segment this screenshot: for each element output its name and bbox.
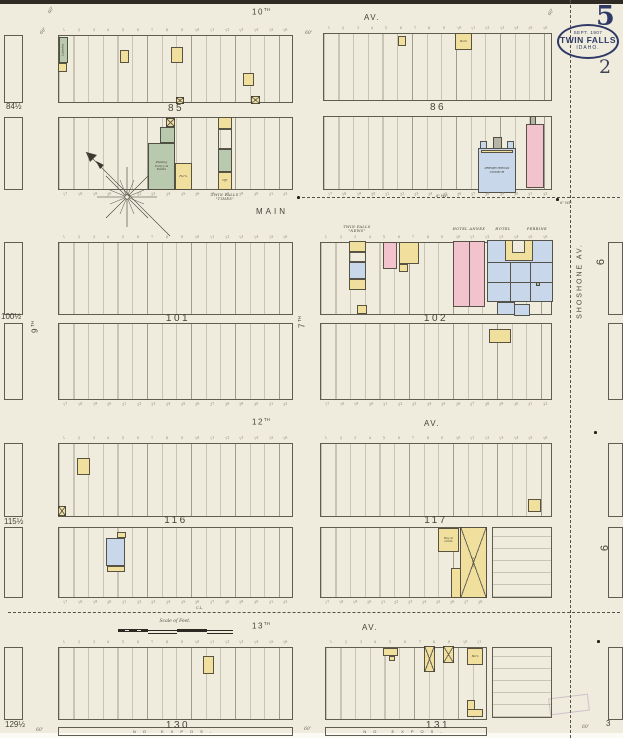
building (497, 302, 515, 315)
lot-number: 24 (165, 401, 171, 406)
water-pipe-dot (297, 196, 300, 199)
lot-number: 2 (77, 28, 80, 33)
lot-number: 24 (165, 599, 171, 604)
lot-number: 28 (477, 599, 483, 604)
building-label: Barn (468, 649, 482, 664)
street-12-num: 12 (252, 418, 264, 427)
lot-number: 27 (470, 401, 476, 406)
lot-number: 11 (209, 27, 215, 32)
lot-number: 31 (268, 401, 274, 406)
building (58, 506, 66, 516)
lot-number: 25 (441, 401, 447, 406)
block-strip (58, 443, 293, 517)
lot-number: 9 (180, 436, 183, 441)
building: Off. (218, 172, 232, 190)
map-annotation: TWIN FALLS "NEWS" (343, 225, 370, 233)
lot-number: 3 (92, 436, 95, 441)
lot-number: 5 (121, 640, 124, 645)
lot-number: 13 (499, 234, 505, 239)
block-strip (323, 116, 552, 190)
lot-number: 1 (63, 436, 66, 441)
lot-number: 30 (254, 599, 260, 604)
lot-number: 13 (239, 435, 245, 440)
block-number: 85 (168, 103, 184, 114)
lot-number: 8 (426, 436, 429, 441)
lot-number: 10 (462, 639, 468, 644)
lot-number: 3 (356, 26, 359, 31)
lot-number: 1 (330, 640, 333, 645)
lot-number: 11 (470, 435, 476, 440)
street-label-main: MAIN (256, 207, 288, 216)
water-pipe-dot (597, 640, 600, 643)
lot-number: 4 (107, 640, 110, 645)
street-label-12th: 12TH (252, 417, 270, 427)
half-block-number: 84½ (6, 102, 22, 111)
building (443, 646, 454, 663)
lot-number: 23 (408, 599, 414, 604)
lot-number: 4 (107, 436, 110, 441)
building: Livery (460, 527, 487, 598)
lot-number: 16 (283, 234, 289, 239)
scan-edge-top (0, 0, 623, 4)
building (251, 96, 260, 104)
street-label-9th: 9TH (30, 321, 40, 333)
lot-number: 18 (338, 599, 344, 604)
half-block-number: 100½ (1, 312, 21, 321)
shoshone-av-centerline (570, 0, 571, 738)
lot-number: 7 (418, 640, 421, 645)
lot-number: 15 (268, 234, 274, 239)
block-strip (320, 323, 552, 400)
building (218, 129, 232, 149)
lot-number: 30 (254, 191, 260, 196)
building (218, 149, 232, 172)
building (160, 127, 175, 143)
lot-number: 23 (151, 599, 157, 604)
block-number: 86 (430, 102, 446, 113)
lot-number: 3 (92, 28, 95, 33)
lot-number: 19 (356, 191, 362, 196)
block-number: 102 (424, 313, 448, 324)
building (530, 116, 536, 125)
building (526, 124, 544, 188)
lot-number: 31 (528, 401, 534, 406)
lot-number: 16 (283, 27, 289, 32)
lot-number: 26 (195, 401, 201, 406)
lot-number: 27 (471, 191, 477, 196)
lot-number: 7 (413, 26, 416, 31)
building (120, 50, 129, 63)
lot-number: 9 (180, 235, 183, 240)
lot-number: 20 (370, 191, 376, 196)
utility-note: 6" W.P. (560, 201, 572, 205)
lot-number: 9 (180, 28, 183, 33)
lot-number: 2 (77, 436, 80, 441)
lot-number: 1 (63, 28, 66, 33)
lot-number: 1 (324, 436, 327, 441)
lot-number: 3 (359, 640, 362, 645)
lot-number: 10 (195, 639, 201, 644)
building-label: PRESBYTERIAN CHURCH (479, 149, 515, 192)
block-strip (492, 647, 552, 718)
lot-number: 21 (121, 599, 127, 604)
lot-number: 3 (353, 436, 356, 441)
lot-number: 16 (283, 639, 289, 644)
block-strip (4, 527, 23, 598)
lot-number: 22 (397, 401, 403, 406)
lot-number: 7 (151, 436, 154, 441)
building (203, 656, 214, 674)
lot-number: 2 (77, 640, 80, 645)
lot-number: 11 (471, 25, 477, 30)
building (166, 118, 175, 127)
lot-number: 25 (180, 599, 186, 604)
lot-number: 21 (380, 599, 386, 604)
street-9-num: 9 (31, 327, 40, 333)
lot-number: 30 (514, 191, 520, 196)
building (487, 262, 553, 263)
main-street-pipe-line (297, 197, 620, 198)
building (58, 63, 67, 72)
lot-number: 12 (224, 435, 230, 440)
lot-number: 6 (397, 235, 400, 240)
lot-number: 15 (528, 25, 534, 30)
lot-number: 30 (254, 401, 260, 406)
lot-number: 5 (382, 436, 385, 441)
lot-number: 20 (107, 599, 113, 604)
lot-number: 29 (499, 401, 505, 406)
lot-number: 19 (92, 401, 98, 406)
building (243, 73, 254, 86)
city-limits-line (8, 612, 620, 613)
lot-number: 26 (456, 191, 462, 196)
lot-number: 18 (77, 599, 83, 604)
lot-number: 13 (499, 435, 505, 440)
building (349, 262, 366, 279)
lot-number: 15 (268, 639, 274, 644)
street-label-13th: 13TH (252, 621, 270, 631)
dimension-label: 60' (47, 6, 55, 15)
edge-block-number: 6 (599, 545, 611, 551)
lot-number: 13 (239, 27, 245, 32)
dimension-label: 60' (305, 31, 312, 36)
lot-number: 32 (542, 191, 548, 196)
street-label-10th-av: AV. (364, 13, 380, 22)
block-strip (58, 35, 293, 103)
street-13-suffix: TH (264, 621, 270, 626)
lot-number: 11 (209, 234, 215, 239)
building (469, 241, 470, 307)
lot-number: 32 (283, 401, 289, 406)
lot-number: 4 (107, 28, 110, 33)
block-strip (4, 443, 23, 517)
lot-number: 15 (268, 435, 274, 440)
building (107, 566, 125, 572)
lot-number: 24 (422, 599, 428, 604)
block-number: 116 (164, 515, 187, 526)
lot-number: 11 (209, 435, 215, 440)
lot-number: 21 (385, 191, 391, 196)
block-strip (320, 443, 552, 517)
lot-number: 20 (368, 401, 374, 406)
scale-label: Scale of Feet. (159, 619, 190, 624)
lot-number: 4 (374, 640, 377, 645)
building (467, 709, 483, 717)
lot-number: 19 (354, 401, 360, 406)
lot-number: 5 (385, 26, 388, 31)
building (218, 117, 232, 129)
stamp-date: SEPT. 1907 (559, 30, 617, 35)
street-10-suffix: TH (264, 7, 270, 12)
lot-number: 21 (121, 401, 127, 406)
building-label: Planing Carp'y & Paints (149, 144, 174, 189)
building: Barn (455, 33, 472, 50)
lot-number: 10 (455, 435, 461, 440)
lot-number: 1 (63, 640, 66, 645)
lot-number: 9 (447, 640, 450, 645)
lot-number: 8 (426, 235, 429, 240)
building (481, 150, 513, 153)
lot-number: 32 (283, 599, 289, 604)
lot-number: 30 (513, 401, 519, 406)
lot-number: 28 (484, 401, 490, 406)
lot-number: 20 (366, 599, 372, 604)
lot-number: 5 (388, 640, 391, 645)
dimension-label: 60' (39, 27, 47, 36)
lot-number: 16 (542, 435, 548, 440)
street-7-num: 7 (298, 322, 307, 328)
stamp-state: IDAHO. (559, 45, 617, 51)
half-block-number: 129½ (5, 720, 25, 729)
lot-number: 6 (397, 436, 400, 441)
lot-number: 32 (542, 401, 548, 406)
lot-number: 5 (121, 436, 124, 441)
building (349, 241, 366, 252)
lot-number: 16 (542, 25, 548, 30)
lot-number: 4 (370, 26, 373, 31)
street-10-num: 10 (252, 8, 264, 17)
dimension-label: 60' (547, 8, 555, 17)
lot-number: 18 (342, 191, 348, 196)
lot-number: 8 (165, 28, 168, 33)
lot-number: 10 (455, 234, 461, 239)
lot-number: 7 (151, 640, 154, 645)
lot-number: 12 (224, 639, 230, 644)
lot-number: 10 (195, 234, 201, 239)
no-exposure-strip-131: NO EXPOS- (325, 727, 487, 736)
lot-number: 10 (195, 435, 201, 440)
lot-number: 14 (513, 234, 519, 239)
lot-number: 20 (107, 401, 113, 406)
lot-number: 15 (528, 234, 534, 239)
lot-number: 10 (195, 27, 201, 32)
lot-number: 29 (239, 401, 245, 406)
lot-number: 5 (382, 235, 385, 240)
street-12-suffix: TH (264, 417, 270, 422)
half-block-number: 115½ (4, 517, 23, 526)
lot-number: 22 (136, 401, 142, 406)
lot-number: 27 (209, 401, 215, 406)
lot-number: 14 (254, 639, 260, 644)
block-strip (4, 242, 23, 315)
building-label: Off. (219, 173, 231, 189)
building: Barn (467, 648, 483, 665)
building (171, 47, 183, 63)
lot-number: 8 (433, 640, 436, 645)
building: Hay & Grain (438, 528, 459, 552)
lot-number: 22 (394, 599, 400, 604)
lot-number: 15 (268, 27, 274, 32)
block-number: 131 (426, 720, 450, 731)
building (451, 568, 461, 598)
lot-number: 11 (477, 639, 483, 644)
building (536, 282, 540, 286)
building (349, 279, 366, 290)
lot-number: 17 (327, 191, 333, 196)
lot-number: 24 (426, 401, 432, 406)
block-strip (608, 242, 623, 315)
lot-number: 25 (180, 191, 186, 196)
lot-number: 3 (353, 235, 356, 240)
lot-number: 23 (151, 401, 157, 406)
street-label-7th: 7TH (297, 316, 307, 328)
block-strip (4, 35, 23, 103)
building-label: Barn (456, 34, 471, 49)
lot-number: 13 (499, 25, 505, 30)
lot-number: 23 (413, 191, 419, 196)
lot-number: 17 (63, 599, 69, 604)
lot-number: 29 (499, 191, 505, 196)
lot-number: 14 (254, 27, 260, 32)
lot-number: 13 (239, 639, 245, 644)
edge-block-number: 6 (595, 259, 607, 265)
building (487, 282, 553, 283)
lot-number: 8 (165, 436, 168, 441)
lot-number: 4 (368, 436, 371, 441)
map-annotation: PERRINE (527, 227, 547, 231)
block-strip (58, 323, 293, 400)
lot-number: 12 (484, 435, 490, 440)
lot-number: 14 (254, 234, 260, 239)
lot-number: 2 (342, 26, 345, 31)
title-stamp: SEPT. 1907 TWIN FALLS IDAHO. (557, 24, 619, 59)
block-strip (58, 647, 293, 720)
building: Laundry (59, 37, 68, 63)
lot-number: 7 (411, 436, 414, 441)
lot-number: 14 (254, 435, 260, 440)
lot-number: 9 (442, 26, 445, 31)
building (489, 329, 511, 343)
map-annotation: HOTEL (495, 227, 510, 231)
lot-number: 2 (339, 436, 342, 441)
lot-number: 1 (327, 26, 330, 31)
lot-number: 5 (121, 28, 124, 33)
building: Furn. (175, 163, 192, 190)
block-strip (4, 647, 23, 720)
lot-number: 17 (63, 401, 69, 406)
building (106, 538, 125, 566)
building (399, 264, 408, 272)
block-number: 101 (166, 313, 190, 324)
street-label-shoshone-av: SHOSHONE AV. (577, 224, 587, 339)
faint-ink-stamp (548, 694, 590, 716)
lot-number: 27 (209, 599, 215, 604)
lot-number: 26 (450, 599, 456, 604)
lot-number: 32 (283, 191, 289, 196)
lot-number: 18 (77, 401, 83, 406)
block-strip (325, 647, 487, 720)
building: Planing Carp'y & Paints (148, 143, 175, 190)
lot-number: 16 (542, 234, 548, 239)
building: PRESBYTERIAN CHURCH (478, 148, 516, 193)
lot-number: 24 (428, 191, 434, 196)
lot-number: 12 (484, 234, 490, 239)
building-label: Furn. (176, 164, 191, 189)
block-number: 117 (424, 515, 447, 526)
block-strip (323, 33, 552, 101)
building (77, 458, 90, 475)
building (424, 646, 435, 672)
lot-number: 27 (463, 599, 469, 604)
lot-number: 17 (324, 599, 330, 604)
building (389, 656, 395, 661)
street-13-num: 13 (252, 622, 264, 631)
lot-number: 7 (411, 235, 414, 240)
lot-number: 25 (180, 401, 186, 406)
lot-number: 28 (224, 599, 230, 604)
lot-number: 28 (224, 401, 230, 406)
lot-number: 6 (136, 436, 139, 441)
stamp-city: TWIN FALLS (559, 35, 617, 45)
building (399, 242, 419, 264)
block-number: 130 (166, 720, 190, 731)
lot-number: 4 (368, 235, 371, 240)
street-label-13th-av: AV. (362, 623, 378, 632)
building (528, 499, 541, 512)
building (398, 36, 406, 46)
building (357, 305, 367, 314)
building (383, 648, 398, 656)
building (514, 304, 530, 316)
water-pipe-dot (594, 431, 597, 434)
lot-number: 31 (268, 191, 274, 196)
lot-number: 31 (268, 599, 274, 604)
building (349, 252, 366, 262)
building (512, 240, 525, 253)
lot-number: 10 (456, 25, 462, 30)
water-pipe-dot (556, 198, 559, 201)
building-label: Hay & Grain (439, 529, 458, 551)
lot-number: 11 (209, 639, 215, 644)
lot-number: 22 (136, 599, 142, 604)
lot-number: 8 (165, 640, 168, 645)
dimension-label: 60' (582, 725, 589, 730)
building-label: Laundry (52, 47, 76, 54)
lot-number: 29 (239, 599, 245, 604)
sanborn-map-sheet: 10TH AV. MAIN 12TH AV. 13TH AV. 7TH 9TH … (0, 0, 623, 738)
lot-number: 17 (325, 401, 331, 406)
lot-number: 6 (136, 28, 139, 33)
lot-number: 2 (339, 235, 342, 240)
dimension-label: 60' (36, 728, 43, 733)
lot-number: 25 (436, 599, 442, 604)
dimension-label: 60' (304, 727, 311, 732)
lot-number: 19 (352, 599, 358, 604)
lot-number: 8 (428, 26, 431, 31)
lot-number: 12 (224, 27, 230, 32)
lot-number: 6 (399, 26, 402, 31)
lot-number: 13 (239, 234, 245, 239)
